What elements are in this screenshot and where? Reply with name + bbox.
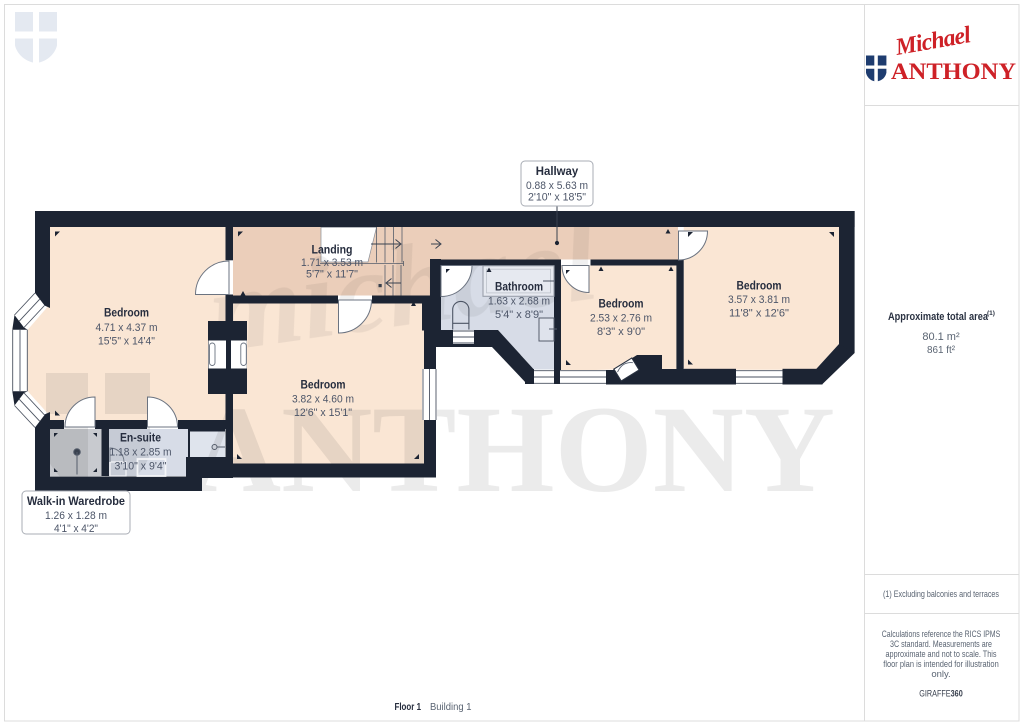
svg-text:(1) Excluding balconies and te: (1) Excluding balconies and terraces	[883, 589, 999, 600]
svg-text:ANTHONY: ANTHONY	[891, 59, 1016, 85]
svg-text:Approximate total area: Approximate total area	[888, 311, 989, 323]
svg-text:12'6" x 15'1": 12'6" x 15'1"	[294, 407, 352, 419]
svg-text:Landing: Landing	[312, 245, 353, 257]
svg-text:5'7" x 11'7": 5'7" x 11'7"	[306, 269, 358, 281]
svg-text:Hallway: Hallway	[536, 166, 579, 178]
svg-text:Walk-in Waredrobe: Walk-in Waredrobe	[27, 496, 125, 508]
svg-text:3'10" x 9'4": 3'10" x 9'4"	[115, 461, 167, 473]
svg-text:1.71 x 3.53 m: 1.71 x 3.53 m	[301, 257, 363, 269]
svg-text:Bedroom: Bedroom	[599, 299, 644, 311]
svg-text:5'4" x 8'9": 5'4" x 8'9"	[495, 309, 543, 321]
svg-text:Bedroom: Bedroom	[301, 380, 346, 392]
svg-text:4.71 x 4.37 m: 4.71 x 4.37 m	[96, 322, 158, 334]
svg-text:3.82 x 4.60 m: 3.82 x 4.60 m	[292, 394, 354, 406]
svg-text:2.53 x 2.76 m: 2.53 x 2.76 m	[590, 313, 652, 325]
svg-text:Bedroom: Bedroom	[104, 308, 149, 320]
svg-text:1.63 x 2.68 m: 1.63 x 2.68 m	[488, 296, 550, 308]
svg-text:En-suite: En-suite	[120, 433, 161, 445]
svg-text:2'10" x 18'5": 2'10" x 18'5"	[528, 192, 586, 204]
svg-text:861 ft²: 861 ft²	[927, 345, 956, 356]
svg-text:11'8" x 12'6": 11'8" x 12'6"	[729, 308, 789, 320]
svg-text:Building 1: Building 1	[430, 701, 472, 713]
svg-text:15'5" x 14'4": 15'5" x 14'4"	[98, 336, 155, 348]
svg-text:Bathroom: Bathroom	[495, 282, 543, 294]
svg-text:80.1 m²: 80.1 m²	[922, 331, 960, 343]
svg-text:GIRAFFE360: GIRAFFE360	[919, 689, 963, 699]
svg-text:1.18 x 2.85 m: 1.18 x 2.85 m	[110, 447, 172, 459]
svg-text:8'3" x 9'0": 8'3" x 9'0"	[597, 326, 645, 338]
svg-text:only.: only.	[931, 669, 950, 680]
svg-text:4'1" x 4'2": 4'1" x 4'2"	[54, 523, 98, 535]
svg-text:Floor 1: Floor 1	[395, 701, 422, 713]
svg-text:0.88 x 5.63 m: 0.88 x 5.63 m	[526, 180, 588, 192]
svg-text:1.26 x 1.28 m: 1.26 x 1.28 m	[45, 510, 107, 522]
svg-text:(1): (1)	[987, 310, 995, 317]
svg-text:ANTHONY: ANTHONY	[190, 381, 835, 518]
svg-text:3.57 x 3.81 m: 3.57 x 3.81 m	[728, 294, 790, 306]
svg-text:Bedroom: Bedroom	[737, 281, 782, 293]
